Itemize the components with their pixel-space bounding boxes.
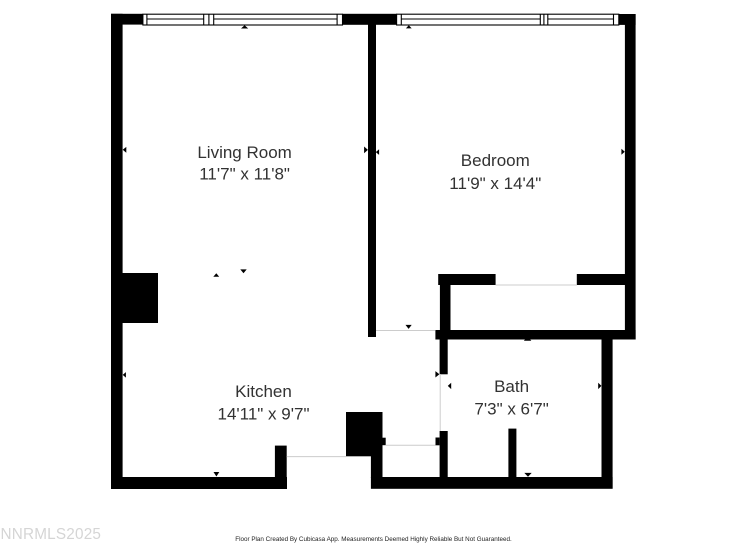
svg-text:NNRMLS2025: NNRMLS2025 bbox=[1, 526, 102, 543]
svg-text:11'7" x 11'8": 11'7" x 11'8" bbox=[199, 165, 290, 184]
svg-text:11'9" x 14'4": 11'9" x 14'4" bbox=[449, 174, 541, 193]
svg-text:7'3" x 6'7": 7'3" x 6'7" bbox=[474, 400, 548, 419]
svg-text:Bedroom: Bedroom bbox=[461, 151, 530, 170]
svg-text:Bath: Bath bbox=[494, 377, 529, 396]
svg-text:Floor Plan Created By Cubicasa: Floor Plan Created By Cubicasa App. Meas… bbox=[235, 536, 512, 543]
svg-text:14'11" x 9'7": 14'11" x 9'7" bbox=[218, 405, 310, 424]
svg-text:Kitchen: Kitchen bbox=[235, 382, 292, 401]
svg-text:Living Room: Living Room bbox=[197, 143, 292, 162]
